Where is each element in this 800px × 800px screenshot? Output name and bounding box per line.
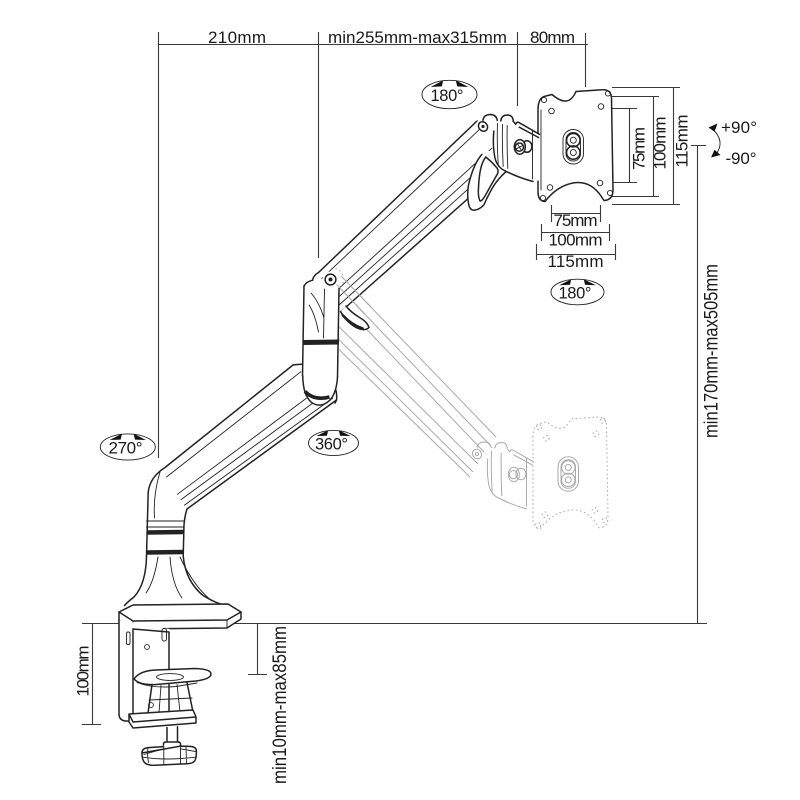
svg-text:115mm: 115mm xyxy=(673,115,692,168)
svg-text:210mm: 210mm xyxy=(208,28,266,47)
svg-text:min10mm-max85mm: min10mm-max85mm xyxy=(269,626,291,784)
svg-text:100mm: 100mm xyxy=(74,646,93,697)
svg-text:115mm: 115mm xyxy=(548,252,604,271)
svg-text:min170mm-max505mm: min170mm-max505mm xyxy=(701,264,723,438)
svg-text:100mm: 100mm xyxy=(651,117,670,170)
svg-text:-90°: -90° xyxy=(726,149,757,168)
svg-text:75mm: 75mm xyxy=(554,211,598,230)
svg-text:80mm: 80mm xyxy=(530,28,575,47)
svg-text:180°: 180° xyxy=(431,87,464,105)
svg-text:360°: 360° xyxy=(315,436,348,454)
svg-text:min255mm-max315mm: min255mm-max315mm xyxy=(328,28,507,47)
svg-text:+90°: +90° xyxy=(721,118,757,137)
svg-text:100mm: 100mm xyxy=(549,231,603,250)
svg-text:75mm: 75mm xyxy=(630,127,649,170)
svg-text:270°: 270° xyxy=(109,439,143,458)
svg-text:180°: 180° xyxy=(559,285,592,303)
